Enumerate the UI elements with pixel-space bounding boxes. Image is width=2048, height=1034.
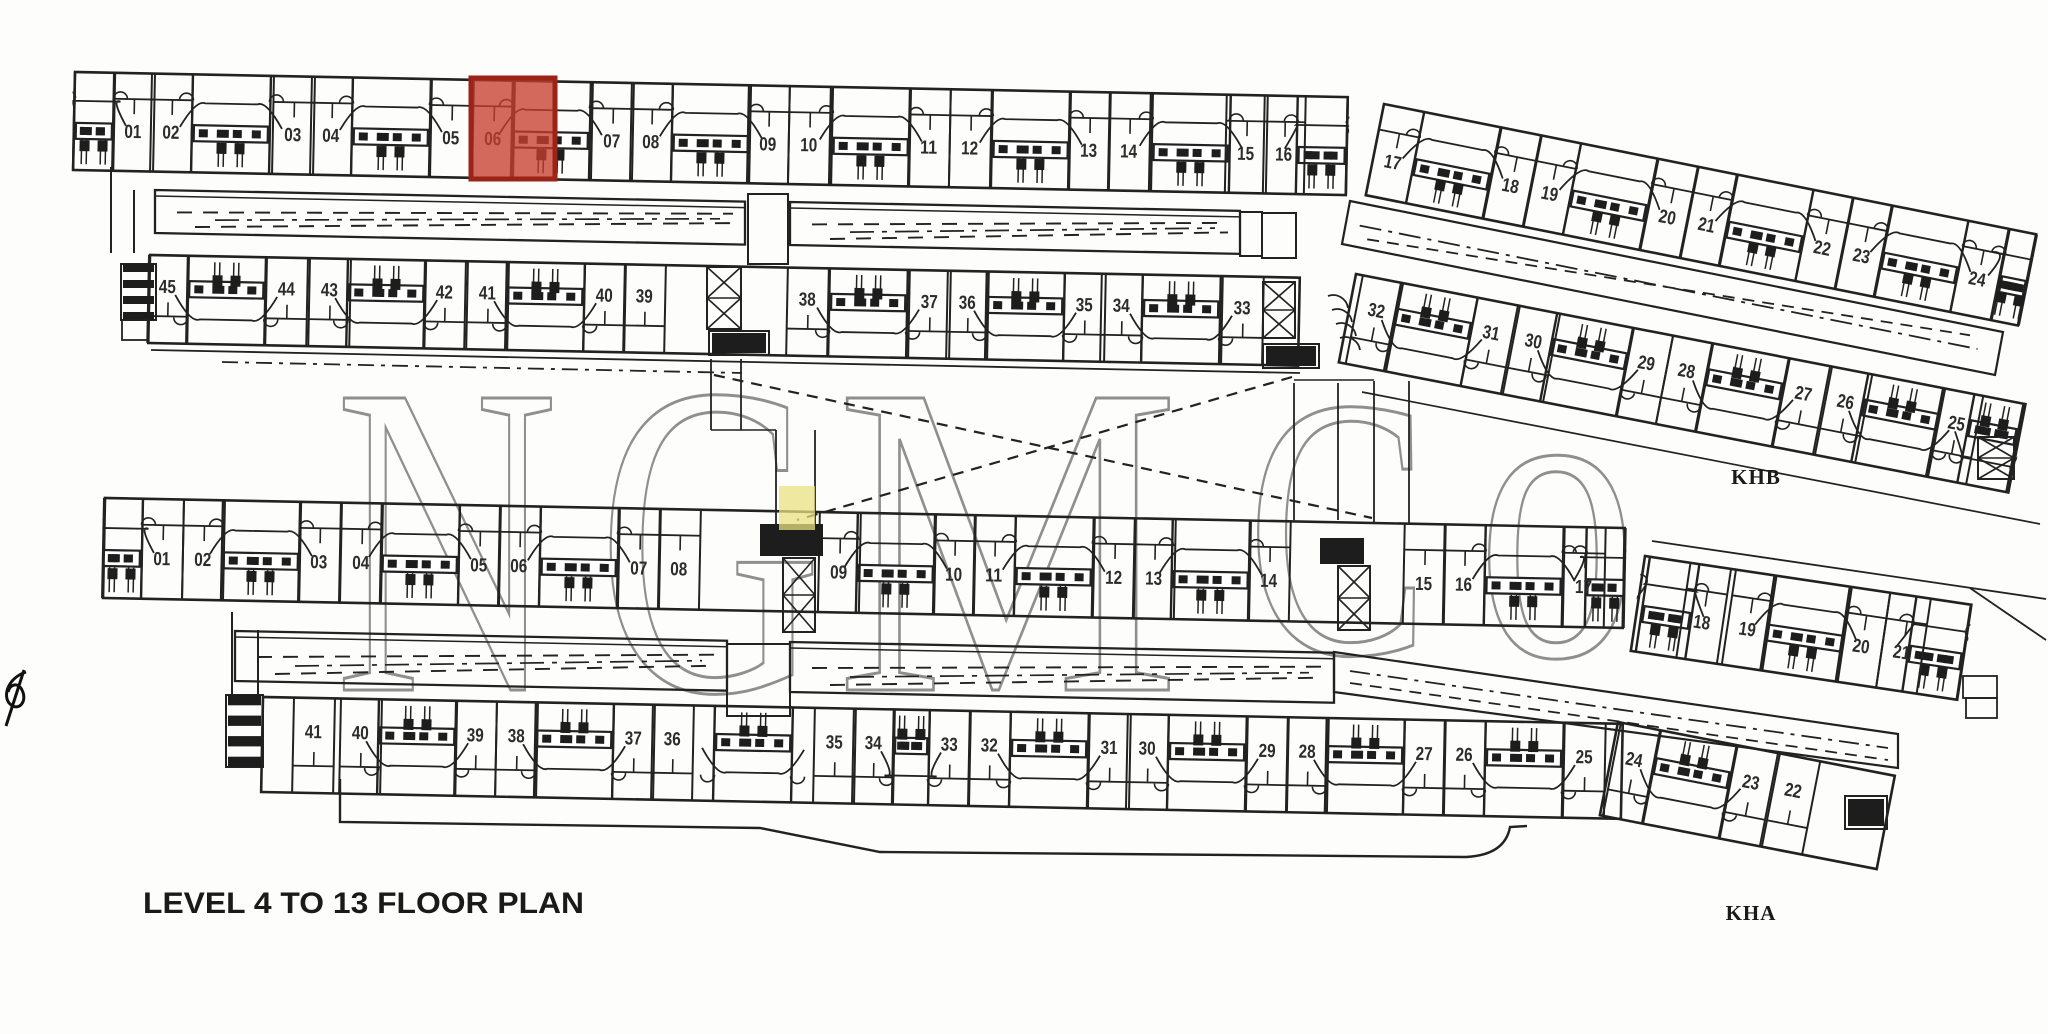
svg-text:16: 16: [1455, 575, 1472, 596]
svg-text:07: 07: [630, 558, 647, 579]
svg-text:01: 01: [124, 122, 142, 143]
svg-text:38: 38: [508, 726, 525, 747]
svg-text:07: 07: [603, 131, 620, 152]
svg-text:37: 37: [625, 728, 642, 749]
svg-text:03: 03: [284, 125, 301, 146]
svg-text:29: 29: [1258, 741, 1275, 762]
svg-text:44: 44: [278, 279, 296, 300]
svg-text:41: 41: [305, 722, 323, 743]
svg-text:06: 06: [510, 556, 527, 577]
svg-text:26: 26: [1455, 745, 1472, 766]
svg-text:37: 37: [921, 292, 938, 313]
svg-text:15: 15: [1237, 144, 1255, 165]
svg-text:13: 13: [1145, 569, 1162, 590]
svg-text:31: 31: [1100, 738, 1118, 759]
svg-text:36: 36: [959, 293, 976, 314]
svg-text:08: 08: [670, 559, 687, 580]
svg-text:32: 32: [980, 735, 997, 756]
svg-text:34: 34: [1112, 296, 1130, 317]
svg-text:42: 42: [436, 282, 453, 303]
svg-text:02: 02: [162, 123, 179, 144]
svg-text:11: 11: [985, 565, 1003, 586]
svg-text:16: 16: [1275, 144, 1292, 165]
svg-text:35: 35: [825, 732, 843, 753]
svg-text:40: 40: [596, 286, 613, 307]
svg-text:36: 36: [664, 729, 681, 750]
svg-text:43: 43: [321, 280, 338, 301]
svg-text:05: 05: [442, 128, 460, 149]
svg-text:33: 33: [1233, 298, 1250, 319]
svg-text:27: 27: [1415, 744, 1432, 765]
svg-text:12: 12: [961, 138, 978, 159]
svg-text:08: 08: [642, 132, 659, 153]
svg-text:35: 35: [1075, 295, 1093, 316]
svg-text:20: 20: [1851, 635, 1871, 658]
svg-text:28: 28: [1298, 742, 1315, 763]
svg-text:N: N: [335, 294, 558, 787]
svg-text:30: 30: [1138, 738, 1155, 759]
svg-text:38: 38: [799, 290, 816, 311]
svg-text:09: 09: [830, 562, 847, 583]
svg-text:17: 17: [1575, 577, 1592, 598]
svg-text:21: 21: [1892, 641, 1912, 664]
svg-text:04: 04: [352, 553, 370, 574]
svg-text:15: 15: [1415, 574, 1433, 595]
svg-text:14: 14: [1260, 571, 1278, 592]
svg-text:39: 39: [467, 725, 484, 746]
svg-text:LEVEL 4 TO 13 FLOOR PLAN: LEVEL 4 TO 13 FLOOR PLAN: [143, 887, 584, 920]
svg-text:11: 11: [920, 137, 938, 158]
svg-text:04: 04: [322, 126, 340, 147]
svg-text:19: 19: [1737, 618, 1757, 641]
svg-text:05: 05: [470, 555, 488, 576]
svg-text:10: 10: [800, 135, 817, 156]
svg-text:KHB: KHB: [1731, 465, 1781, 489]
svg-text:40: 40: [352, 723, 369, 744]
svg-text:09: 09: [759, 134, 776, 155]
svg-text:01: 01: [153, 549, 171, 570]
svg-text:14: 14: [1120, 141, 1138, 162]
svg-text:13: 13: [1080, 141, 1097, 162]
svg-text:45: 45: [159, 277, 177, 298]
svg-text:34: 34: [864, 733, 882, 754]
svg-text:12: 12: [1105, 568, 1122, 589]
svg-text:03: 03: [310, 552, 327, 573]
svg-text:33: 33: [940, 735, 957, 756]
svg-text:10: 10: [945, 565, 962, 586]
svg-text:41: 41: [479, 283, 497, 304]
svg-text:KHA: KHA: [1726, 901, 1777, 925]
svg-text:39: 39: [636, 286, 653, 307]
svg-text:02: 02: [194, 550, 211, 571]
svg-text:18: 18: [1692, 612, 1712, 635]
svg-text:25: 25: [1575, 747, 1593, 768]
